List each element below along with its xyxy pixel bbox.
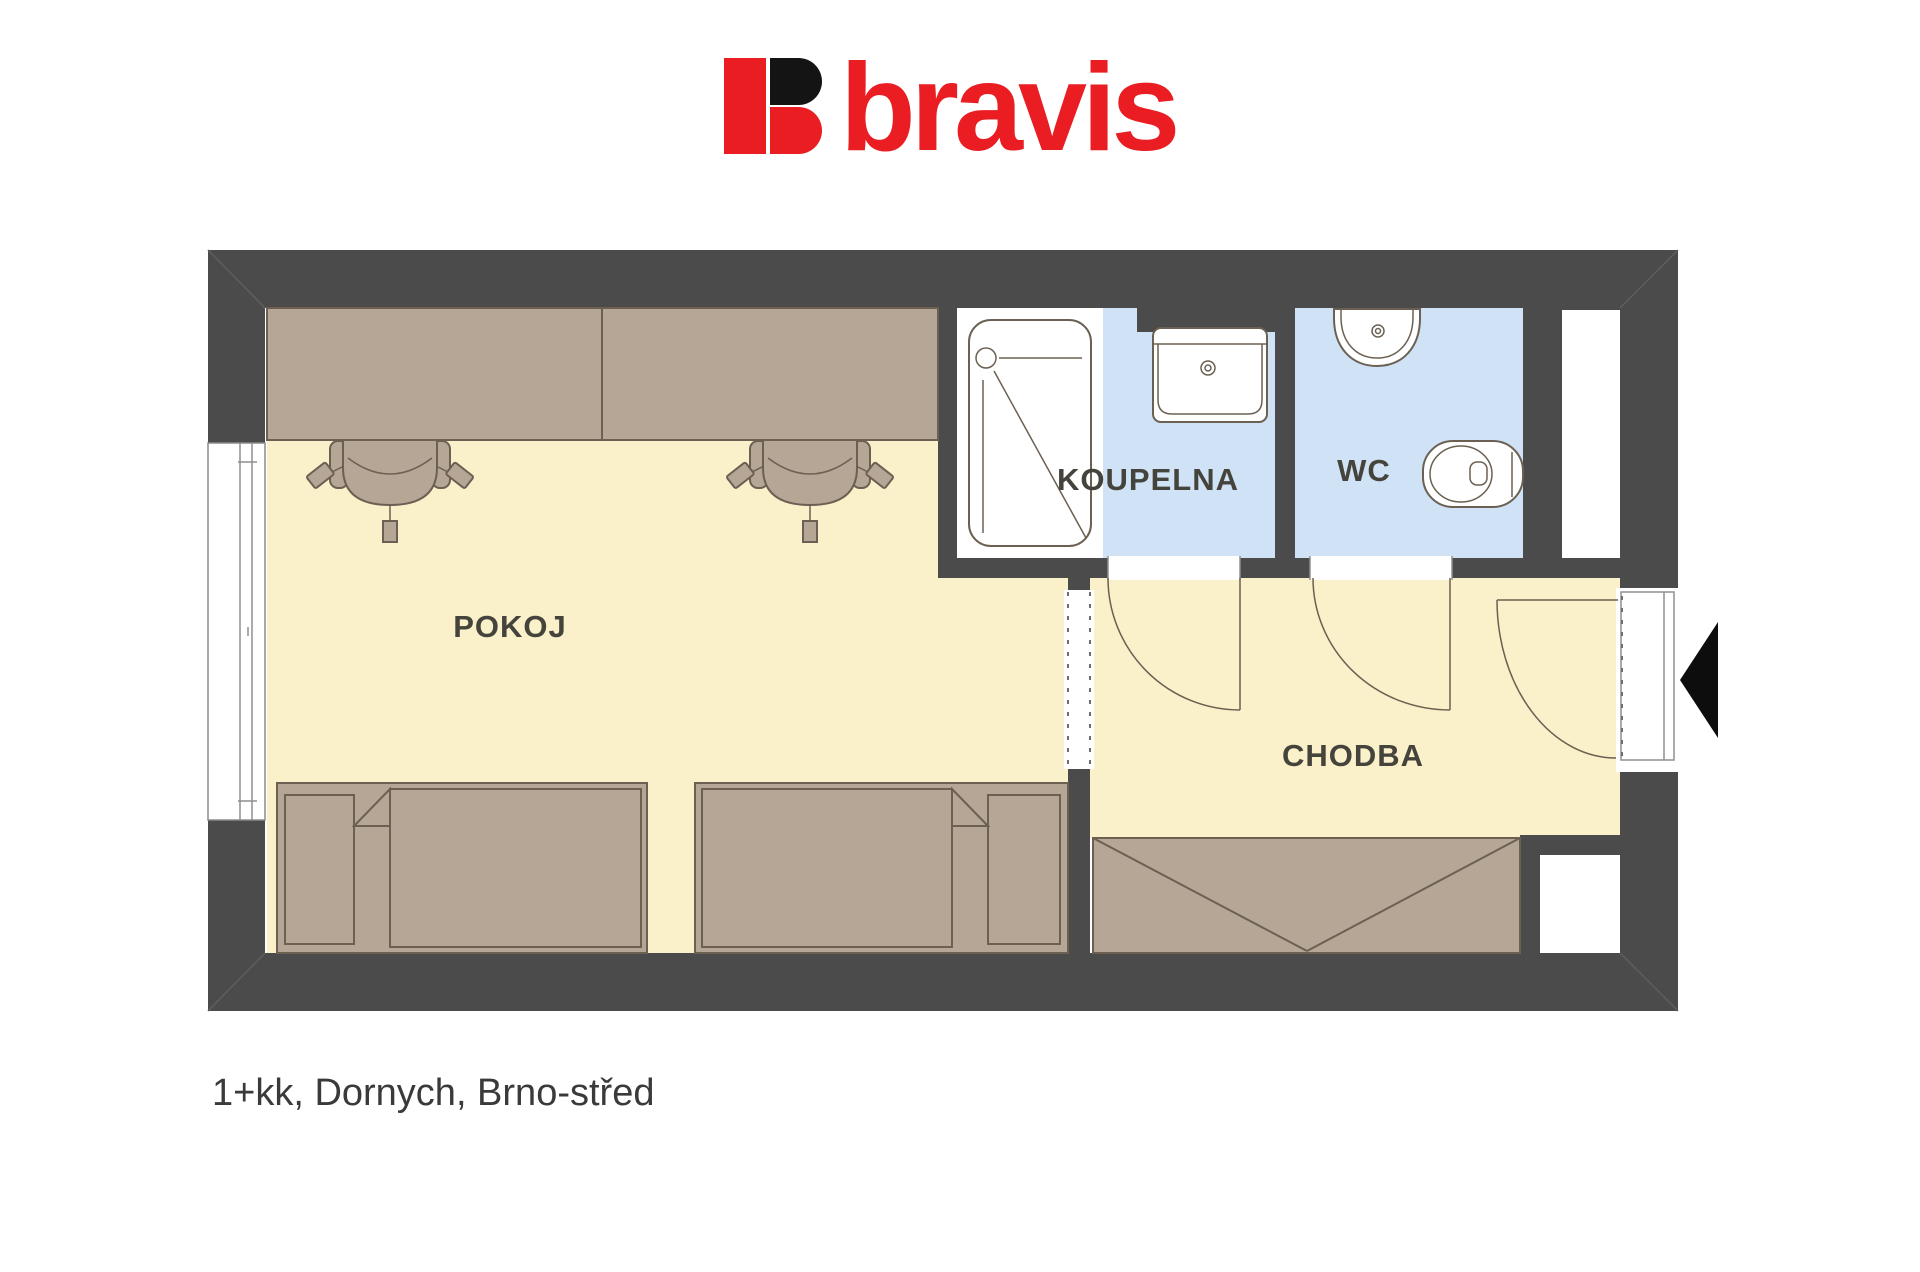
toilet [1423,441,1523,507]
room-label-pokoj: POKOJ [453,609,567,644]
window [208,443,265,820]
niche-top-right [1562,310,1620,558]
wardrobe [1093,838,1520,953]
room-label-chodba: CHODBA [1282,738,1424,773]
sink [1153,328,1267,422]
room-chodba-floor [1090,578,1620,838]
doorway-koupelna [1108,556,1240,580]
entrance-arrow-icon [1680,622,1718,738]
doorway-wc [1310,556,1452,580]
bed [277,783,647,953]
page: bravis [0,0,1920,1272]
desk [267,308,938,440]
shower [957,308,1103,558]
bed [695,783,1068,953]
listing-caption: 1+kk, Dornych, Brno-střed [212,1072,654,1115]
room-label-wc: WC [1337,453,1391,488]
room-label-koupelna: KOUPELNA [1057,462,1239,497]
opening-pokoj-chodba [1064,590,1094,769]
niche-bottom-right [1540,855,1620,953]
